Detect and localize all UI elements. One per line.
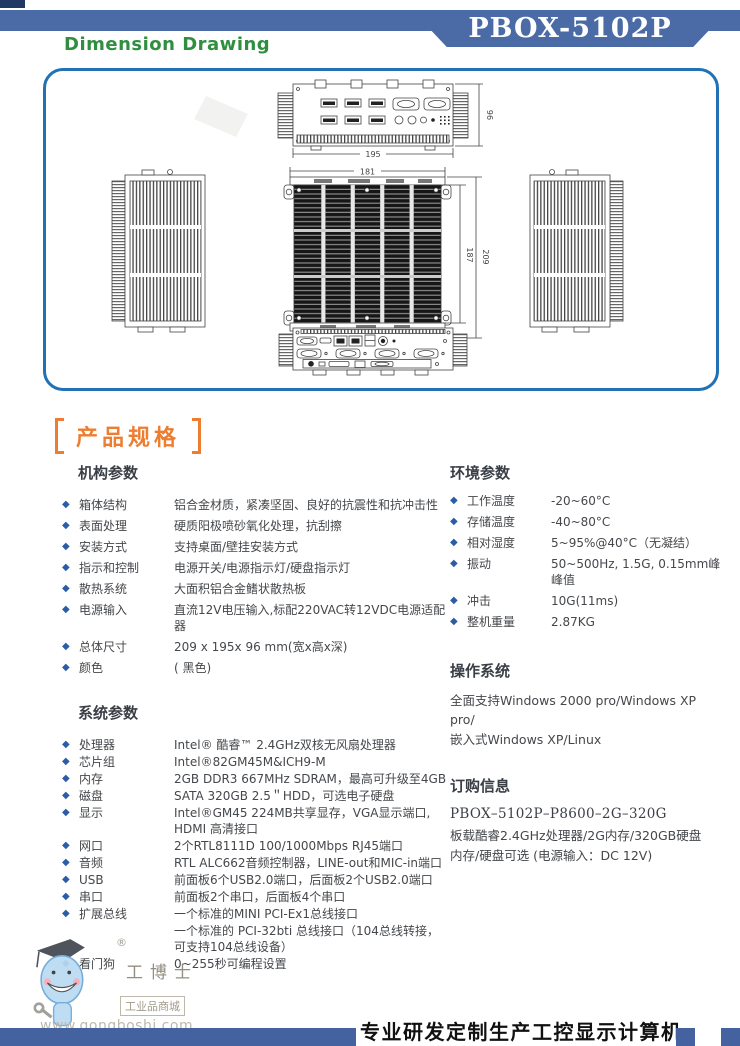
footer-slogan: 专业研发定制生产工控显示计算机 xyxy=(360,1016,683,1045)
spec-value: 2个RTL8111D 100/1000Mbps RJ45端口 xyxy=(174,838,450,854)
spec-value: 10G(11ms) xyxy=(551,593,722,609)
diamond-bullet-icon: ◆ xyxy=(62,539,79,555)
spec-row: ◆表面处理硬质阳极喷砂氧化处理，抗刮擦 xyxy=(62,518,450,534)
spec-label: 存储温度 xyxy=(467,514,551,530)
model-badge: PBOX-5102P xyxy=(430,10,710,47)
group-heading-mech: 机构参数 xyxy=(78,462,450,483)
spec-label: 内存 xyxy=(79,771,174,787)
footer-square-icon xyxy=(676,1028,695,1046)
diamond-bullet-icon: ◆ xyxy=(450,593,467,609)
diamond-bullet-icon: ◆ xyxy=(62,639,79,655)
spec-row: ◆散热系统大面积铝合金鳍状散热板 xyxy=(62,581,450,597)
diamond-bullet-icon: ◆ xyxy=(450,614,467,630)
spec-row: ◆箱体结构铝合金材质，紧凑坚固、良好的抗震性和抗冲击性 xyxy=(62,497,450,513)
top-view: 181 xyxy=(284,167,490,338)
spec-row: ◆工作温度-20~60°C xyxy=(450,493,722,509)
spec-value: Intel®82GM45M&ICH9-M xyxy=(174,754,450,770)
spec-left-column: 机构参数 ◆箱体结构铝合金材质，紧凑坚固、良好的抗震性和抗冲击性 ◆表面处理硬质… xyxy=(62,448,450,973)
spec-row: ◆总体尺寸209 x 195x 96 mm(宽x高x深) xyxy=(62,639,450,655)
spec-columns: 机构参数 ◆箱体结构铝合金材质，紧凑坚固、良好的抗震性和抗冲击性 ◆表面处理硬质… xyxy=(62,448,722,973)
env-params-group: 环境参数 ◆工作温度-20~60°C ◆存储温度-40~80°C ◆相对湿度5~… xyxy=(450,462,722,630)
dim-depth-inner: 187 xyxy=(465,247,474,262)
spec-value: 5~95%@40°C（无凝结） xyxy=(551,535,722,551)
spec-label: 振动 xyxy=(467,556,551,572)
corner-accent xyxy=(0,0,25,8)
spec-row: ◆芯片组Intel®82GM45M&ICH9-M xyxy=(62,754,450,770)
spec-label: 散热系统 xyxy=(79,581,174,597)
spec-label: 音频 xyxy=(79,855,174,871)
group-heading-system: 系统参数 xyxy=(78,702,450,723)
left-side-view xyxy=(112,170,205,333)
spec-label: 电源输入 xyxy=(79,602,174,618)
diamond-bullet-icon: ◆ xyxy=(62,581,79,597)
group-heading-env: 环境参数 xyxy=(450,462,722,483)
spec-label: USB xyxy=(79,872,174,888)
spec-row: ◆颜色( 黑色) xyxy=(62,660,450,676)
spec-row: ◆安装方式支持桌面/壁挂安装方式 xyxy=(62,539,450,555)
spec-value: 直流12V电压输入,标配220VAC转12VDC电源适配器 xyxy=(174,602,450,634)
spec-label: 指示和控制 xyxy=(79,560,174,576)
spec-right-column: 环境参数 ◆工作温度-20~60°C ◆存储温度-40~80°C ◆相对湿度5~… xyxy=(450,448,722,973)
spec-value: 50~500Hz, 1.5G, 0.15mm峰峰值 xyxy=(551,556,722,588)
diamond-bullet-icon: ◆ xyxy=(62,889,79,905)
spec-label: 相对湿度 xyxy=(467,535,551,551)
system-params-group: 系统参数 ◆处理器Intel® 酷睿™ 2.4GHz双核无风扇处理器 ◆芯片组I… xyxy=(62,702,450,972)
spec-label: 处理器 xyxy=(79,737,174,753)
spec-label: 串口 xyxy=(79,889,174,905)
spec-row: ◆整机重量2.87KG xyxy=(450,614,722,630)
gongboshi-watermark: ® 工博士 工业品商城 www.gongboshi.com xyxy=(14,936,244,1040)
spec-row: ◆磁盘SATA 320GB 2.5＂HDD，可选电子硬盘 xyxy=(62,788,450,804)
spec-row: ◆振动50~500Hz, 1.5G, 0.15mm峰峰值 xyxy=(450,556,722,588)
spec-value: 2.87KG xyxy=(551,614,722,630)
spec-value: RTL ALC662音频控制器，LINE-out和MIC-in端口 xyxy=(174,855,450,871)
order-line: 内存/硬盘可选 (电源输入：DC 12V) xyxy=(450,846,722,865)
diamond-bullet-icon: ◆ xyxy=(62,737,79,753)
diamond-bullet-icon: ◆ xyxy=(62,660,79,676)
spec-label: 表面处理 xyxy=(79,518,174,534)
diamond-bullet-icon: ◆ xyxy=(62,497,79,513)
diamond-bullet-icon: ◆ xyxy=(62,838,79,854)
datasheet-page: PBOX-5102P Dimension Drawing xyxy=(0,0,740,1046)
group-heading-os: 操作系统 xyxy=(450,660,722,681)
spec-value: 铝合金材质，紧凑坚固、良好的抗震性和抗冲击性 xyxy=(174,497,450,513)
spec-row: ◆处理器Intel® 酷睿™ 2.4GHz双核无风扇处理器 xyxy=(62,737,450,753)
diamond-bullet-icon: ◆ xyxy=(62,906,79,922)
spec-row: ◆存储温度-40~80°C xyxy=(450,514,722,530)
mech-params-group: 机构参数 ◆箱体结构铝合金材质，紧凑坚固、良好的抗震性和抗冲击性 ◆表面处理硬质… xyxy=(62,462,450,676)
diamond-bullet-icon: ◆ xyxy=(450,535,467,551)
spec-label: 扩展总线 xyxy=(79,906,174,922)
spec-value: -40~80°C xyxy=(551,514,722,530)
logo-tagline: 工业品商城 xyxy=(120,996,185,1016)
spec-value: 支持桌面/壁挂安装方式 xyxy=(174,539,450,555)
group-heading-order: 订购信息 xyxy=(450,775,722,796)
spec-value: 前面板2个串口，后面板4个串口 xyxy=(174,889,450,905)
spec-value: 一个标准的MINI PCI-Ex1总线接口 xyxy=(174,906,450,922)
spec-row: ◆扩展总线一个标准的MINI PCI-Ex1总线接口 xyxy=(62,906,450,922)
dimension-drawing-panel: 195 96 xyxy=(43,68,719,391)
spec-value: -20~60°C xyxy=(551,493,722,509)
footer-bar xyxy=(0,1028,356,1046)
model-name: PBOX-5102P xyxy=(468,13,671,44)
dim-depth-outer: 209 xyxy=(481,249,490,264)
diamond-bullet-icon: ◆ xyxy=(450,514,467,530)
spec-row: ◆显示Intel®GM45 224MB共享显存，VGA显示端口, HDMI 高清… xyxy=(62,805,450,837)
spec-label: 工作温度 xyxy=(467,493,551,509)
diamond-bullet-icon: ◆ xyxy=(450,556,467,572)
spec-label: 网口 xyxy=(79,838,174,854)
logo-name: 工博士 xyxy=(126,958,198,983)
page-title: Dimension Drawing xyxy=(64,34,270,55)
spec-row: ◆指示和控制电源开关/电源指示灯/硬盘指示灯 xyxy=(62,560,450,576)
diamond-bullet-icon: ◆ xyxy=(62,771,79,787)
right-side-view xyxy=(530,170,623,333)
spec-label: 颜色 xyxy=(79,660,174,676)
diamond-bullet-icon: ◆ xyxy=(62,872,79,888)
spec-row: ◆电源输入直流12V电压输入,标配220VAC转12VDC电源适配器 xyxy=(62,602,450,634)
order-model: PBOX–5102P–P8600–2G–320G xyxy=(450,806,722,822)
order-info-group: 订购信息 PBOX–5102P–P8600–2G–320G 板载酷睿2.4GHz… xyxy=(450,775,722,865)
footer-square-icon xyxy=(721,1028,740,1046)
registered-mark: ® xyxy=(116,936,127,949)
dim-rear-height: 96 xyxy=(485,110,494,120)
spec-value: SATA 320GB 2.5＂HDD，可选电子硬盘 xyxy=(174,788,450,804)
spec-value: Intel® 酷睿™ 2.4GHz双核无风扇处理器 xyxy=(174,737,450,753)
spec-row: ◆音频RTL ALC662音频控制器，LINE-out和MIC-in端口 xyxy=(62,855,450,871)
os-line: 全面支持Windows 2000 pro/Windows XP pro/ xyxy=(450,691,722,730)
spec-row: ◆内存2GB DDR3 667MHz SDRAM，最高可升级至4GB xyxy=(62,771,450,787)
spec-row: ◆网口2个RTL8111D 100/1000Mbps RJ45端口 xyxy=(62,838,450,854)
spec-value: Intel®GM45 224MB共享显存，VGA显示端口, HDMI 高清接口 xyxy=(174,805,450,837)
diamond-bullet-icon: ◆ xyxy=(450,493,467,509)
diamond-bullet-icon: ◆ xyxy=(62,560,79,576)
spec-label: 总体尺寸 xyxy=(79,639,174,655)
spec-row: ◆USB前面板6个USB2.0端口，后面板2个USB2.0端口 xyxy=(62,872,450,888)
spec-row: ◆相对湿度5~95%@40°C（无凝结） xyxy=(450,535,722,551)
spec-label: 显示 xyxy=(79,805,174,821)
spec-value: 2GB DDR3 667MHz SDRAM，最高可升级至4GB xyxy=(174,771,450,787)
diamond-bullet-icon: ◆ xyxy=(62,518,79,534)
spec-value: 硬质阳极喷砂氧化处理，抗刮擦 xyxy=(174,518,450,534)
diamond-bullet-icon: ◆ xyxy=(62,855,79,871)
spec-label: 箱体结构 xyxy=(79,497,174,513)
spec-label: 整机重量 xyxy=(467,614,551,630)
spec-value: 大面积铝合金鳍状散热板 xyxy=(174,581,450,597)
spec-label: 磁盘 xyxy=(79,788,174,804)
spec-label: 芯片组 xyxy=(79,754,174,770)
dim-rear-width: 195 xyxy=(365,150,380,159)
spec-label: 冲击 xyxy=(467,593,551,609)
dimension-drawing: 195 96 xyxy=(46,71,716,388)
os-line: 嵌入式Windows XP/Linux xyxy=(450,730,722,749)
order-line: 板载酷睿2.4GHz处理器/2G内存/320GB硬盘 xyxy=(450,826,722,845)
spec-value: 电源开关/电源指示灯/硬盘指示灯 xyxy=(174,560,450,576)
diamond-bullet-icon: ◆ xyxy=(62,805,79,821)
spec-row: ◆冲击10G(11ms) xyxy=(450,593,722,609)
spec-value: 209 x 195x 96 mm(宽x高x深) xyxy=(174,639,450,655)
diamond-bullet-icon: ◆ xyxy=(62,754,79,770)
spec-label: 安装方式 xyxy=(79,539,174,555)
os-group: 操作系统 全面支持Windows 2000 pro/Windows XP pro… xyxy=(450,660,722,749)
spec-value: ( 黑色) xyxy=(174,660,450,676)
diamond-bullet-icon: ◆ xyxy=(62,788,79,804)
spec-row: ◆串口前面板2个串口，后面板4个串口 xyxy=(62,889,450,905)
rear-view: 195 96 xyxy=(278,80,494,159)
spec-value: 前面板6个USB2.0端口，后面板2个USB2.0端口 xyxy=(174,872,450,888)
front-view xyxy=(279,328,467,375)
dim-top-width: 181 xyxy=(360,168,375,177)
diamond-bullet-icon: ◆ xyxy=(62,602,79,618)
